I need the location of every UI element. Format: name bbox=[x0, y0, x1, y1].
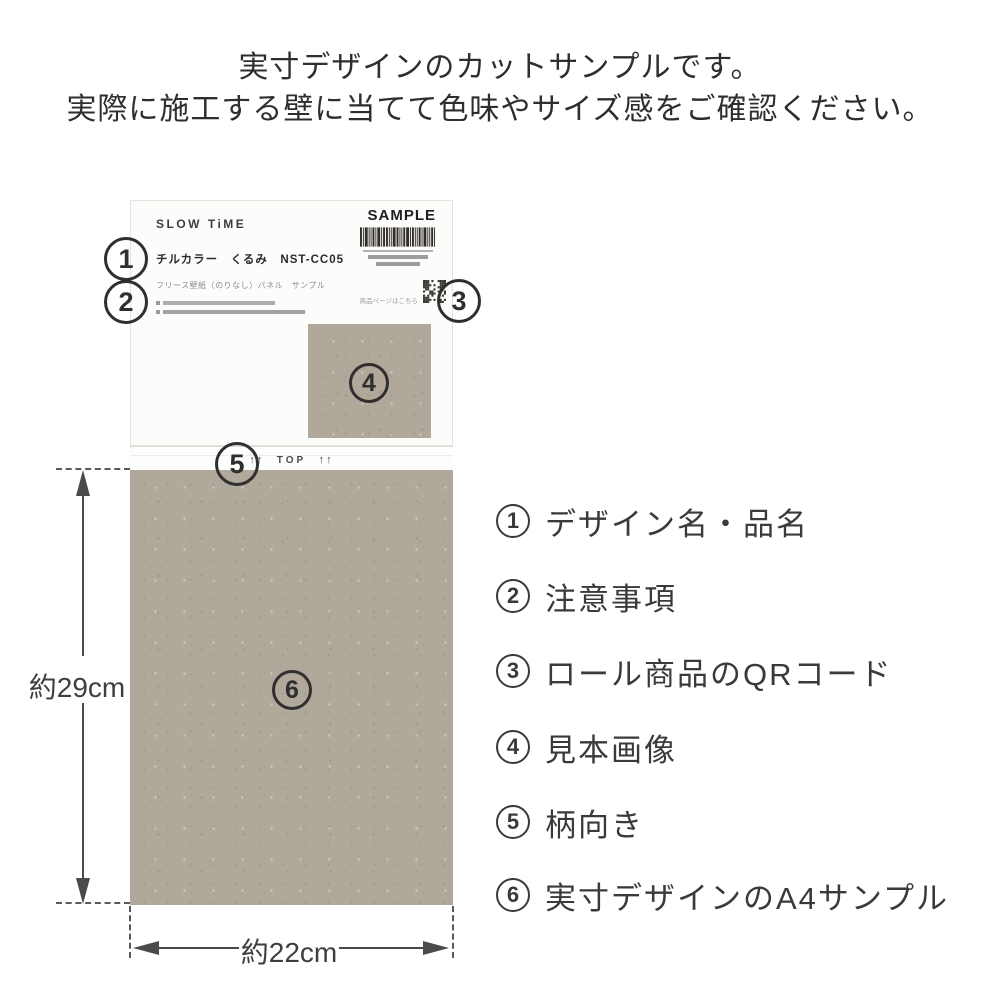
dimension-line bbox=[159, 947, 239, 949]
legend-label: ロール商品のQRコード bbox=[545, 649, 893, 694]
sample-card-header: SLOW TiME SAMPLE チルカラー くるみ NST-CC05 フリース… bbox=[130, 200, 453, 446]
barcode-line bbox=[363, 250, 433, 252]
legend-number-circle: 2 bbox=[496, 579, 530, 613]
legend-number-circle: 3 bbox=[496, 654, 530, 688]
brand-logo: SLOW TiME bbox=[156, 217, 246, 231]
legend-label: 見本画像 bbox=[545, 725, 677, 770]
barcode-number-lines bbox=[360, 250, 436, 266]
legend-label: 柄向き bbox=[545, 800, 644, 845]
legend-label: デザイン名・品名 bbox=[545, 499, 809, 544]
callout-1: 1 bbox=[104, 237, 148, 281]
legend-item-sample-image: 4 見本画像 bbox=[496, 727, 677, 767]
note-bullet bbox=[156, 310, 160, 314]
note-redacted-bar bbox=[163, 301, 275, 305]
page-heading-line2: 実際に施工する壁に当てて色味やサイズ感をご確認ください。 bbox=[0, 93, 1000, 127]
height-dimension-label: 約29cm bbox=[27, 666, 127, 706]
legend-label: 注意事項 bbox=[545, 574, 677, 619]
pattern-direction-band: ↑↑ TOP ↑↑ bbox=[130, 446, 453, 471]
barcode-line bbox=[376, 262, 420, 266]
dimension-extension-line bbox=[56, 468, 130, 470]
callout-5: 5 bbox=[215, 442, 259, 486]
legend-number-circle: 1 bbox=[496, 504, 530, 538]
legend-item-notes: 2 注意事項 bbox=[496, 576, 677, 616]
legend-item-a4-sample: 6 実寸デザインのA4サンプル bbox=[496, 875, 949, 915]
arrowhead-right-icon bbox=[423, 941, 449, 955]
width-dimension-label: 約22cm bbox=[239, 931, 339, 971]
legend-number-circle: 4 bbox=[496, 730, 530, 764]
legend-label: 実寸デザインのA4サンプル bbox=[545, 873, 949, 918]
dimension-line bbox=[82, 703, 84, 878]
legend-item-qr-code: 3 ロール商品のQRコード bbox=[496, 651, 893, 691]
legend-item-design-name: 1 デザイン名・品名 bbox=[496, 501, 809, 541]
arrowhead-down-icon bbox=[76, 878, 90, 904]
legend-number-circle: 5 bbox=[496, 805, 530, 839]
dimension-extension-line bbox=[56, 902, 130, 904]
note-placeholder-row bbox=[156, 301, 275, 305]
pattern-direction-row: ↑↑ TOP ↑↑ bbox=[130, 450, 453, 468]
note-placeholder-row bbox=[156, 310, 305, 314]
barcode-line bbox=[368, 255, 428, 259]
dimension-extension-line bbox=[129, 906, 131, 958]
callout-2: 2 bbox=[104, 280, 148, 324]
up-arrows-icon: ↑↑ bbox=[319, 454, 334, 466]
note-redacted-bar bbox=[163, 310, 305, 314]
dimension-line bbox=[339, 947, 423, 949]
barcode bbox=[360, 227, 436, 247]
product-name: チルカラー くるみ NST-CC05 bbox=[156, 251, 344, 267]
dimension-extension-line bbox=[452, 906, 454, 958]
page: 実寸デザインのカットサンプルです。 実際に施工する壁に当てて色味やサイズ感をご確… bbox=[0, 0, 1000, 1000]
callout-6: 6 bbox=[272, 670, 312, 710]
sample-label: SAMPLE bbox=[367, 207, 436, 224]
note-bullet bbox=[156, 301, 160, 305]
legend-number-circle: 6 bbox=[496, 878, 530, 912]
callout-4: 4 bbox=[349, 363, 389, 403]
dimension-line bbox=[82, 496, 84, 656]
top-direction-label: TOP bbox=[277, 455, 306, 466]
callout-3: 3 bbox=[437, 279, 481, 323]
product-type-label: フリース壁紙（のりなし）パネル サンプル bbox=[156, 280, 325, 291]
qr-caption: 商品ページはこちら bbox=[360, 295, 418, 305]
arrowhead-up-icon bbox=[76, 470, 90, 496]
arrowhead-left-icon bbox=[133, 941, 159, 955]
page-heading-line1: 実寸デザインのカットサンプルです。 bbox=[0, 51, 1000, 85]
legend-item-pattern-direction: 5 柄向き bbox=[496, 802, 644, 842]
